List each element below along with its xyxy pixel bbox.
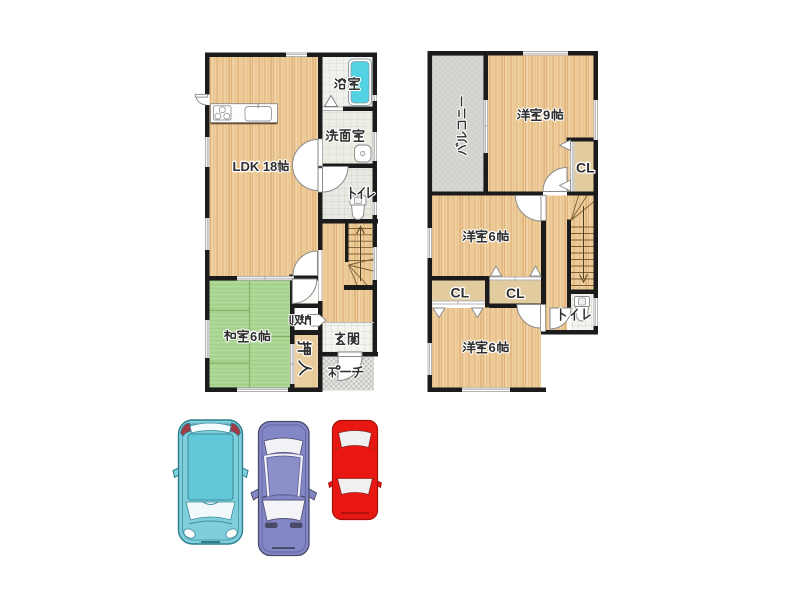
svg-text:9: 9 [543, 108, 550, 123]
svg-text:CL: CL [576, 160, 595, 176]
svg-text:LDK 18: LDK 18 [233, 159, 278, 174]
svg-text:6: 6 [489, 229, 496, 244]
svg-text:6: 6 [489, 340, 496, 355]
svg-text:CL: CL [506, 285, 525, 301]
svg-text:6: 6 [250, 329, 257, 344]
svg-text:CL: CL [451, 285, 470, 301]
